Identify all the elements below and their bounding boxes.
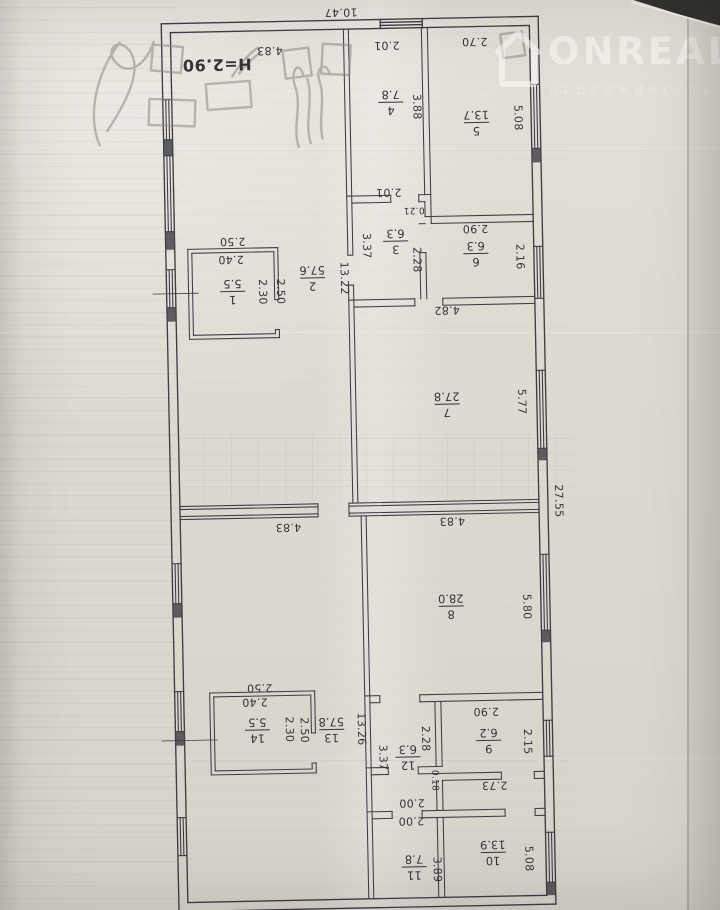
- onrealt-watermark: ONREALT НЕДВИЖИМОСТЬ: [492, 20, 720, 120]
- dimension-label: 2.50: [298, 717, 312, 743]
- room-label: 727.8: [434, 389, 460, 418]
- dimension-label: H=2.90: [182, 55, 252, 75]
- room-label: 828.0: [438, 591, 464, 620]
- dimension-label: 4.83: [275, 521, 301, 535]
- room-label: 1357.8: [318, 715, 344, 744]
- room-label: 117.8: [401, 852, 427, 881]
- dimension-label: 10.47: [324, 5, 357, 19]
- dimension-label: 2.90: [473, 705, 499, 719]
- dimension-label: 13.26: [355, 712, 369, 745]
- dimension-label: 2.00: [398, 814, 424, 828]
- paper-fold-shade: [689, 0, 720, 910]
- dimension-label: 3.89: [430, 857, 444, 883]
- dimension-label: 5.77: [515, 389, 529, 415]
- dimension-label: 4.83: [257, 44, 283, 58]
- dimension-label: 4.82: [434, 303, 460, 317]
- dimension-label: 2.73: [482, 779, 508, 793]
- dimension-label: 13.22: [338, 262, 352, 295]
- dimension-label: 2.01: [374, 39, 400, 53]
- plan-labels: 10.474.83H=2.902.012.703.885.082.010.212…: [0, 0, 720, 910]
- floor-plan-photo: 10.474.83H=2.902.012.703.885.082.010.212…: [0, 0, 720, 910]
- dimension-label: 0.18: [429, 770, 439, 791]
- dimension-label: 2.90: [462, 222, 488, 236]
- dimension-label: 2.70: [462, 35, 488, 49]
- dimension-label: 5.08: [522, 846, 536, 872]
- dimension-label: 2.30: [256, 279, 270, 305]
- room-label: 513.7: [463, 108, 489, 137]
- room-label: 36.3: [383, 226, 409, 255]
- dimension-label: 2.28: [410, 247, 424, 273]
- dimension-label: 2.40: [242, 695, 268, 709]
- dimension-label: 2.50: [247, 681, 273, 695]
- dimension-label: 3.88: [410, 94, 424, 120]
- dimension-label: 2.00: [399, 796, 425, 810]
- dimension-label: 2.15: [521, 729, 535, 755]
- dimension-label: 2.30: [283, 716, 297, 742]
- dimension-label: 2.40: [218, 253, 244, 267]
- dimension-label: 2.01: [376, 186, 402, 200]
- dimension-label: 3.37: [376, 745, 390, 771]
- dimension-label: 27.55: [552, 484, 566, 517]
- dimension-label: 2.50: [220, 235, 246, 249]
- room-label: 145.5: [245, 715, 271, 744]
- room-label: 47.8: [378, 88, 404, 117]
- room-label: 1013.9: [480, 838, 506, 867]
- dimension-label: 0.21: [403, 205, 424, 215]
- dimension-label: 4.83: [439, 514, 465, 528]
- dimension-label: 2.50: [274, 279, 288, 305]
- room-label: 66.3: [463, 239, 489, 268]
- dimension-label: 5.80: [520, 594, 534, 620]
- house-logo-icon: [492, 26, 544, 92]
- room-label: 96.2: [476, 726, 502, 755]
- dimension-label: 3.37: [360, 233, 374, 259]
- room-label: 257.6: [299, 263, 325, 292]
- room-label: 15.5: [220, 277, 246, 306]
- dimension-label: 2.16: [513, 244, 527, 270]
- dimension-label: 2.28: [419, 726, 433, 752]
- floor-plan: 10.474.83H=2.902.012.703.885.082.010.212…: [0, 0, 720, 910]
- room-label: 126.3: [395, 742, 421, 771]
